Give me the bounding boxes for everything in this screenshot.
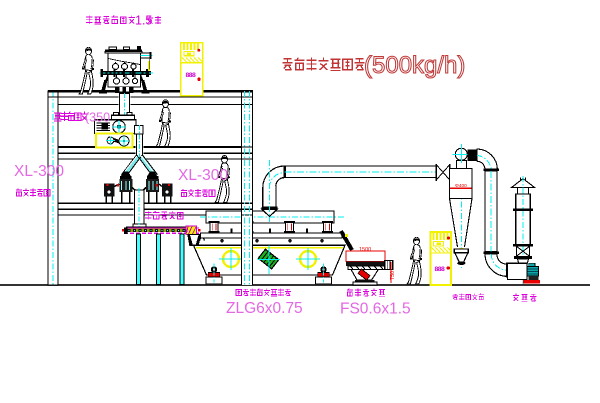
svg-text:888: 888	[186, 72, 197, 79]
svg-text:(350: (350	[85, 111, 110, 125]
svg-text:1500: 1500	[359, 247, 371, 253]
svg-text:1.5: 1.5	[135, 14, 152, 28]
svg-text:750: 750	[390, 271, 396, 280]
svg-text:888: 888	[435, 266, 446, 273]
svg-text:(500kg/h): (500kg/h)	[364, 52, 465, 79]
svg-text:XL-300: XL-300	[178, 167, 228, 184]
svg-text:FS0.6x1.5: FS0.6x1.5	[340, 301, 411, 318]
svg-text:XL-300: XL-300	[14, 163, 64, 180]
svg-text:ZLG6x0.75: ZLG6x0.75	[226, 300, 303, 317]
